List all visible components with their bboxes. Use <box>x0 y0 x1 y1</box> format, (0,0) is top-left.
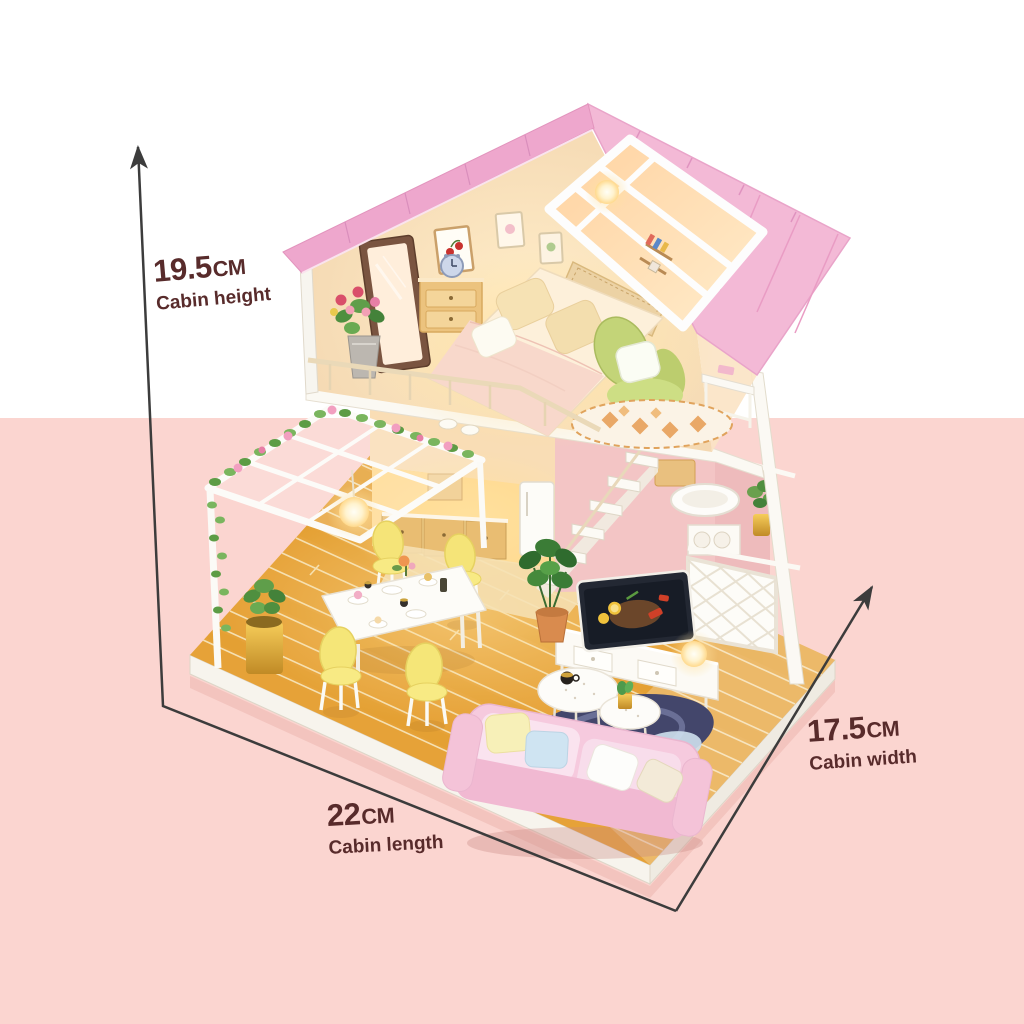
sofa-pillow <box>485 712 532 754</box>
width-value-unit: CM <box>866 716 900 743</box>
height-value-number: 19.5 <box>152 249 213 289</box>
sofa-pillow <box>525 731 569 769</box>
height-value: 19.5CM <box>152 246 269 288</box>
floor-lamp-ball <box>670 630 718 678</box>
slipper <box>461 425 479 435</box>
product-screenshot: 19.5CM Cabin height 22CM Cabin length 17… <box>0 0 1024 1024</box>
bedroom-rug <box>572 400 732 448</box>
pergola-post <box>480 462 484 548</box>
slipper <box>439 419 457 429</box>
dimension-height-label: 19.5CM Cabin height <box>152 246 272 315</box>
width-value: 17.5CM <box>806 708 916 748</box>
length-value-number: 22 <box>326 796 361 833</box>
length-value: 22CM <box>326 794 443 833</box>
width-value-number: 17.5 <box>806 710 867 749</box>
dollhouse-photo <box>0 0 1024 1024</box>
alarm-clock <box>441 254 463 277</box>
dimension-width-label: 17.5CM Cabin width <box>806 708 918 775</box>
height-value-unit: CM <box>212 254 247 282</box>
dimension-length-label: 22CM Cabin length <box>326 794 444 859</box>
length-value-unit: CM <box>361 802 395 829</box>
